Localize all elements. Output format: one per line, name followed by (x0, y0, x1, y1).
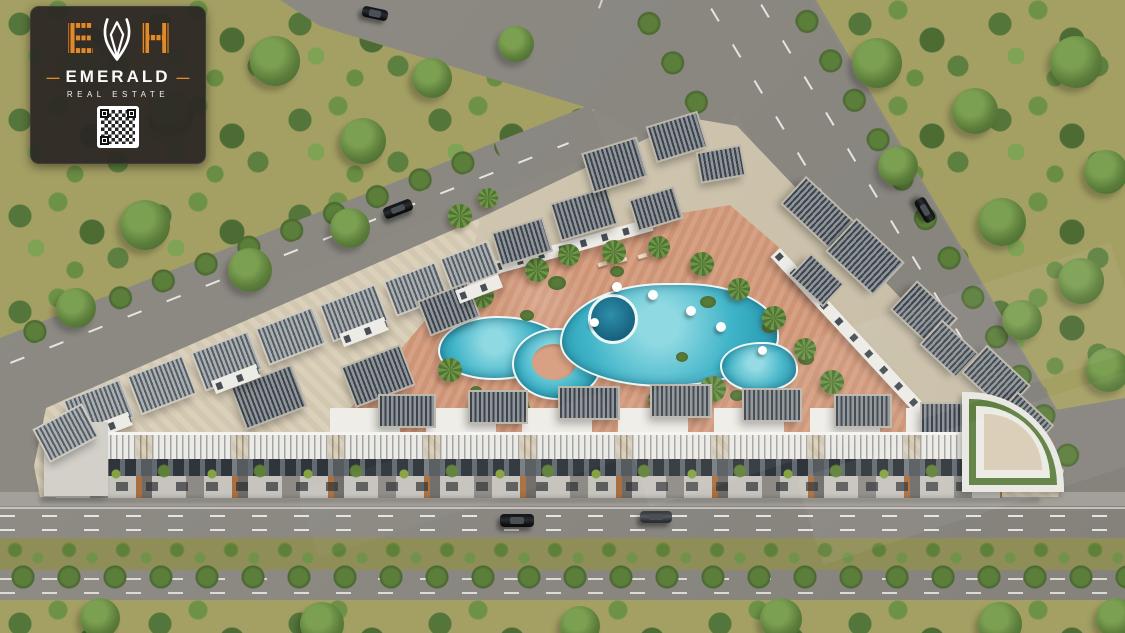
palm-tree (525, 258, 549, 282)
tree (412, 58, 452, 98)
palm-tree (648, 236, 670, 258)
shrub (700, 296, 716, 308)
brand-name: EMERALD (65, 67, 170, 87)
shrub (548, 276, 566, 290)
qr-finder (127, 109, 136, 118)
palm-row-boulevard (0, 562, 1125, 604)
tree (498, 26, 534, 62)
tree (1084, 150, 1125, 194)
umbrella (648, 290, 658, 300)
umbrella (590, 318, 599, 327)
logo-card: E H — EMERALD — REAL ESTATE (30, 6, 206, 164)
car (640, 511, 672, 523)
tree (978, 198, 1026, 246)
tree (760, 598, 802, 633)
monogram-letter-h: H (140, 17, 171, 61)
palm-tree (602, 240, 626, 264)
tree (330, 208, 370, 248)
palm-tree (478, 188, 498, 208)
tree (80, 598, 120, 633)
pergola-roof (380, 396, 434, 426)
logo-monogram: E H (65, 16, 170, 62)
qr-code (97, 106, 139, 148)
tree (340, 118, 386, 164)
umbrella (716, 322, 726, 332)
brand-dash-left: — (46, 71, 59, 84)
monogram-letter-e: E (65, 17, 93, 61)
palm-tree (728, 278, 750, 300)
qr-finder (100, 109, 109, 118)
aerial-render-scene: E H — EMERALD — REAL ESTATE (0, 0, 1125, 633)
tree (878, 146, 918, 186)
palm-tree (762, 306, 786, 330)
pergola-roof (470, 392, 526, 422)
brand-row: — EMERALD — (46, 67, 189, 87)
umbrella (686, 306, 696, 316)
qr-finder (100, 136, 109, 145)
brand-subtitle: REAL ESTATE (67, 90, 169, 99)
tree (852, 38, 902, 88)
umbrella (612, 282, 622, 292)
tree (120, 200, 170, 250)
tree (228, 248, 272, 292)
palm-tree (690, 252, 714, 276)
gem-outline-icon (99, 16, 135, 62)
palm-tree (438, 358, 462, 382)
car (500, 514, 534, 527)
tree (250, 36, 300, 86)
shrub (520, 310, 534, 321)
tree (56, 288, 96, 328)
shrub (676, 352, 688, 362)
tree (1050, 36, 1102, 88)
shrub (610, 266, 624, 277)
tree (952, 88, 998, 134)
lane-marking (0, 529, 1125, 531)
brand-dash-right: — (177, 71, 190, 84)
palm-tree (448, 204, 472, 228)
palm-tree (558, 244, 580, 266)
